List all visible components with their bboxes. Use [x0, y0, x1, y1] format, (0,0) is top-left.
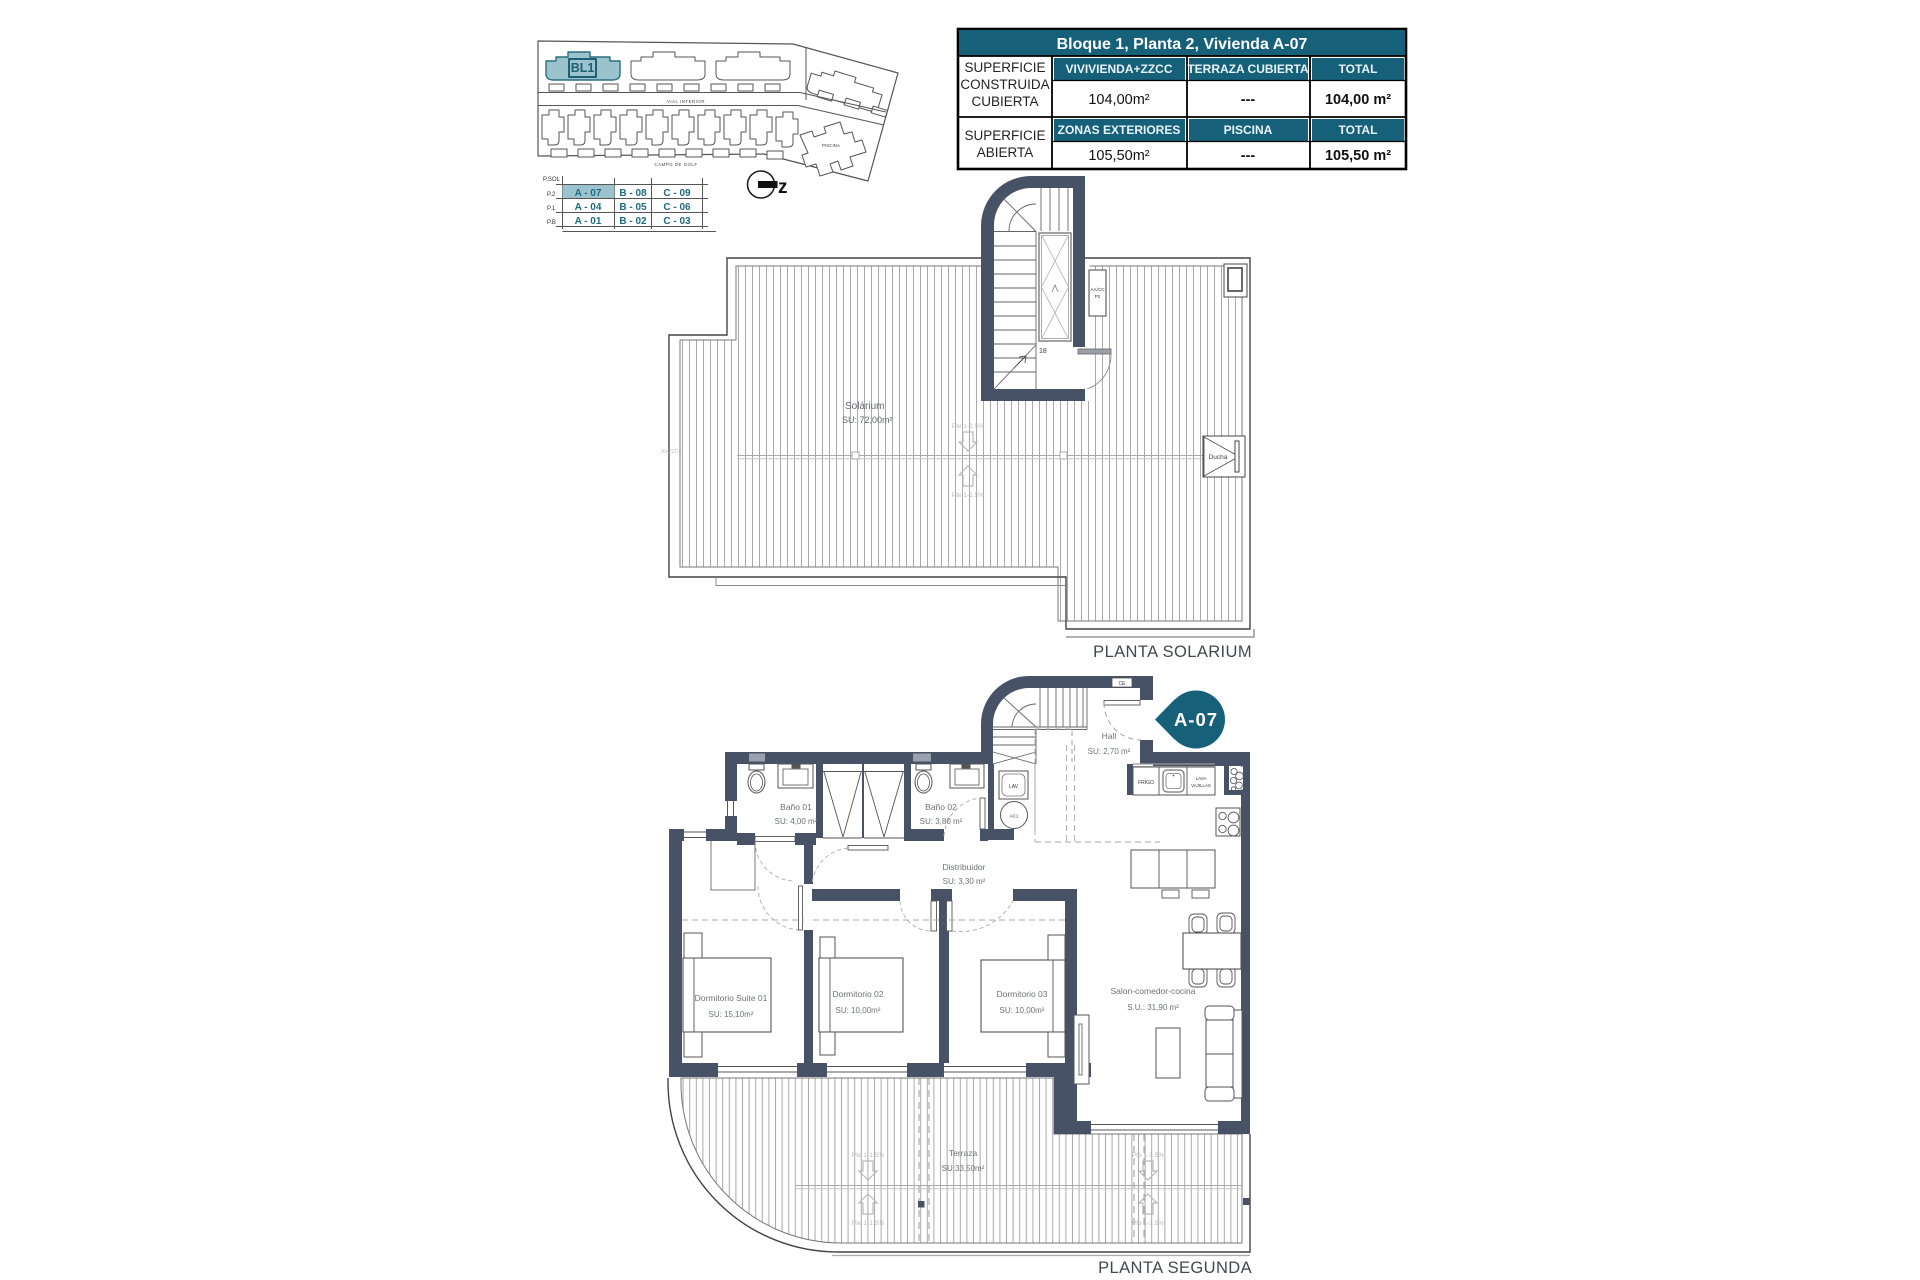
svg-text:Baño 02: Baño 02: [925, 802, 957, 812]
svg-text:LAVA: LAVA: [1196, 776, 1207, 781]
svg-text:SUPERFICIE: SUPERFICIE: [964, 128, 1045, 143]
svg-text:TOTAL: TOTAL: [1339, 123, 1378, 137]
svg-text:A-07: A-07: [1174, 709, 1218, 730]
svg-text:B - 08: B - 08: [619, 188, 647, 199]
svg-text:Dormitorio 03: Dormitorio 03: [996, 989, 1047, 999]
svg-text:AC1: AC1: [1010, 814, 1019, 819]
svg-text:SU: 10,00m²: SU: 10,00m²: [1000, 1006, 1045, 1015]
svg-text:P.B: P.B: [547, 220, 556, 226]
svg-text:FRIGO: FRIGO: [1138, 780, 1154, 786]
svg-text:CAMPO DE GOLF: CAMPO DE GOLF: [654, 162, 697, 167]
svg-text:BL1: BL1: [571, 61, 595, 75]
svg-text:C - 06: C - 06: [663, 202, 691, 213]
svg-text:105,50 m²: 105,50 m²: [1325, 148, 1391, 164]
svg-text:PLANTA SOLARIUM: PLANTA SOLARIUM: [1093, 643, 1252, 661]
svg-text:P.1: P.1: [547, 206, 556, 212]
svg-text:Bloque 1, Planta 2, Vivienda A: Bloque 1, Planta 2, Vivienda A-07: [1057, 36, 1308, 53]
svg-text:CUBIERTA: CUBIERTA: [971, 94, 1038, 109]
svg-text:VAJILLAS: VAJILLAS: [1191, 783, 1211, 788]
svg-text:18: 18: [1039, 348, 1047, 355]
svg-text:Dormitorio Suite 01: Dormitorio Suite 01: [695, 993, 768, 1003]
svg-text:PISCINA: PISCINA: [822, 143, 840, 148]
svg-text:CE: CE: [1119, 681, 1127, 687]
svg-text:SU: 15,10m²: SU: 15,10m²: [709, 1010, 754, 1019]
svg-text:Baño 01: Baño 01: [780, 802, 812, 812]
svg-text:SU:33,50m²: SU:33,50m²: [942, 1164, 985, 1173]
svg-text:B - 05: B - 05: [619, 202, 647, 213]
svg-text:ZONAS EXTERIORES: ZONAS EXTERIORES: [1058, 123, 1181, 137]
svg-text:AV/ZZCC: AV/ZZCC: [661, 449, 682, 455]
svg-text:---: ---: [1241, 148, 1256, 164]
svg-text:Terraza: Terraza: [949, 1148, 978, 1158]
svg-text:B - 02: B - 02: [619, 216, 647, 227]
svg-text:A - 01: A - 01: [575, 216, 602, 227]
svg-text:Pte 1-1.5%: Pte 1-1.5%: [1132, 1152, 1164, 1159]
svg-text:104,00 m²: 104,00 m²: [1325, 92, 1391, 108]
svg-text:AA/CC: AA/CC: [1090, 287, 1105, 292]
svg-text:S.U.: 31,90 m²: S.U.: 31,90 m²: [1127, 1003, 1179, 1012]
svg-text:CONSTRUIDA: CONSTRUIDA: [960, 77, 1049, 92]
svg-text:SU: 4,00 m²: SU: 4,00 m²: [775, 817, 818, 826]
svg-text:P.SOL: P.SOL: [543, 177, 561, 183]
svg-text:SUPERFICIE: SUPERFICIE: [964, 60, 1045, 75]
svg-text:A - 07: A - 07: [575, 188, 602, 199]
svg-text:TERRAZA CUBIERTA: TERRAZA CUBIERTA: [1187, 62, 1309, 76]
svg-text:P.2: P.2: [547, 192, 556, 198]
svg-text:SU: 2,70 m²: SU: 2,70 m²: [1088, 747, 1131, 756]
svg-text:LAV: LAV: [1009, 784, 1019, 790]
svg-text:104,00m²: 104,00m²: [1088, 92, 1149, 108]
svg-text:Salon-comedor-cocina: Salon-comedor-cocina: [1110, 986, 1195, 996]
svg-text:P2: P2: [1095, 294, 1101, 299]
svg-text:TOTAL: TOTAL: [1339, 62, 1378, 76]
svg-text:SU: 72,00m²: SU: 72,00m²: [842, 415, 893, 425]
svg-text:ABIERTA: ABIERTA: [977, 145, 1034, 160]
svg-text:SU: 3,80 m²: SU: 3,80 m²: [920, 817, 963, 826]
svg-text:C - 09: C - 09: [663, 188, 691, 199]
svg-text:SU: 3,30 m²: SU: 3,30 m²: [943, 877, 986, 886]
svg-text:Pte 1-1.5%: Pte 1-1.5%: [1132, 1220, 1164, 1227]
svg-text:Ducha: Ducha: [1209, 454, 1228, 461]
svg-text:PISCINA: PISCINA: [1224, 123, 1273, 137]
svg-text:Dormitorio 02: Dormitorio 02: [832, 989, 883, 999]
svg-text:z: z: [778, 177, 788, 198]
svg-text:Pte 1-1.5%: Pte 1-1.5%: [952, 423, 984, 430]
svg-text:VIAL INTERIOR: VIAL INTERIOR: [667, 99, 705, 104]
svg-text:Distribuidor: Distribuidor: [943, 862, 986, 872]
svg-text:A - 04: A - 04: [575, 202, 602, 213]
svg-text:---: ---: [1241, 92, 1256, 108]
svg-text:SU: 10,00m²: SU: 10,00m²: [836, 1006, 881, 1015]
svg-text:Pte 1-1.5%: Pte 1-1.5%: [852, 1152, 884, 1159]
svg-text:Solárium: Solárium: [845, 401, 884, 412]
svg-text:Pte 1-1.5%: Pte 1-1.5%: [952, 492, 984, 499]
svg-text:C - 03: C - 03: [663, 216, 691, 227]
svg-text:VIVIVIENDA+ZZCC: VIVIVIENDA+ZZCC: [1065, 62, 1172, 76]
svg-text:105,50m²: 105,50m²: [1088, 148, 1149, 164]
svg-text:Hall: Hall: [1102, 731, 1117, 741]
svg-text:Pte 1-1.5%: Pte 1-1.5%: [852, 1220, 884, 1227]
svg-text:PLANTA SEGUNDA: PLANTA SEGUNDA: [1098, 1259, 1252, 1277]
